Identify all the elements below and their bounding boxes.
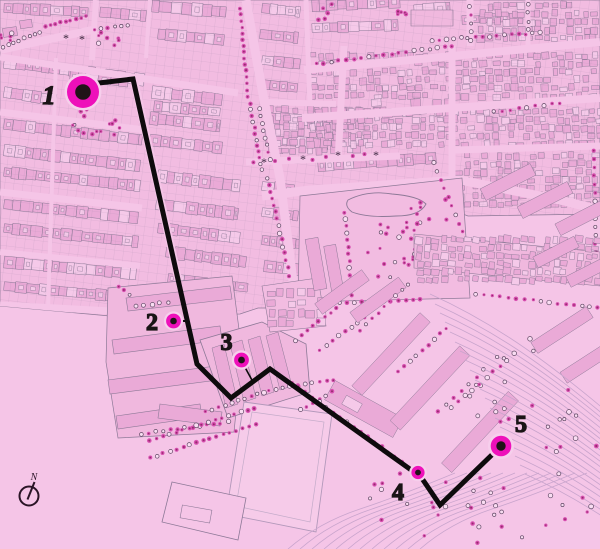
svg-text:*: * xyxy=(300,152,306,166)
svg-text:N: N xyxy=(30,472,39,483)
svg-text:4: 4 xyxy=(392,480,404,506)
svg-text:*: * xyxy=(63,31,69,45)
svg-text:2: 2 xyxy=(146,310,158,336)
svg-text:*: * xyxy=(373,148,379,162)
svg-text:1: 1 xyxy=(43,81,56,110)
svg-text:*: * xyxy=(79,32,85,46)
svg-text:5: 5 xyxy=(515,412,527,438)
svg-text:3: 3 xyxy=(221,330,233,356)
svg-text:*: * xyxy=(335,148,341,162)
svg-text:*: * xyxy=(261,155,267,169)
